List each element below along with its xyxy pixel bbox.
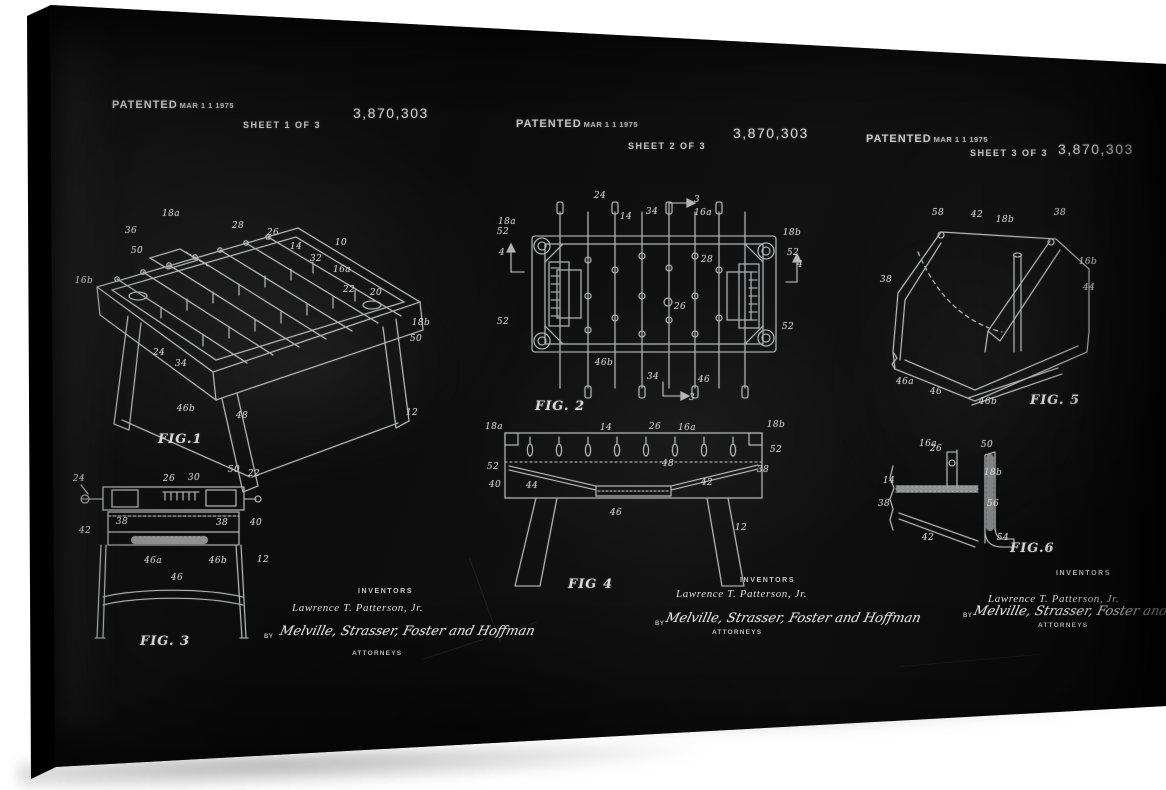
part-label-52: 52	[497, 227, 509, 237]
part-label-24: 24	[594, 191, 606, 201]
part-label-18b: 18b	[996, 215, 1014, 225]
attorneys-signature: Melville, Strasser, Foster and Hoffman	[664, 611, 922, 626]
part-label-48: 48	[236, 411, 248, 421]
fig6-caption: FIG.6	[1010, 541, 1055, 556]
part-label-46a: 46a	[144, 556, 162, 566]
attorneys-heading: ATTORNEYS	[712, 629, 762, 636]
part-label-46: 46	[698, 375, 710, 385]
part-label-42: 42	[971, 210, 983, 220]
attorneys-heading: ATTORNEYS	[352, 650, 402, 657]
sheet3-header: PATENTEDMAR 1 1 1975 SHEET 3 OF 3 3,870,…	[0, 0, 1166, 790]
fig3-part-labels: 24263050223838404246a4646b12	[0, 0, 1166, 790]
part-label-10: 10	[335, 238, 347, 248]
part-label-18a: 18a	[498, 217, 516, 227]
sheet2-header: PATENTEDMAR 1 1 1975 SHEET 2 OF 3 3,870,…	[0, 0, 1166, 790]
fig4-caption: FIG 4	[568, 577, 613, 592]
inventors-heading: INVENTORS	[1056, 570, 1111, 577]
part-label-12: 12	[257, 555, 269, 565]
part-label-38: 38	[757, 465, 769, 475]
part-label-26: 26	[930, 444, 942, 454]
part-label-26: 26	[267, 228, 279, 238]
part-label-12: 12	[406, 408, 418, 418]
section-arrow-3-top	[669, 199, 695, 216]
sheet-number: SHEET 1 OF 3	[243, 120, 321, 130]
patented-date: MAR 1 1 1975	[584, 120, 638, 129]
part-label-24: 24	[73, 474, 85, 484]
part-label-14: 14	[883, 476, 895, 486]
patented-stamp: PATENTEDMAR 1 1 1975	[112, 99, 234, 111]
part-label-52: 52	[770, 445, 782, 455]
figure-6-drawing	[890, 450, 1014, 547]
part-label-52: 52	[487, 462, 499, 472]
part-label-46a: 46a	[896, 377, 914, 387]
part-label-46b: 46b	[979, 397, 997, 407]
part-label-26: 26	[649, 422, 661, 432]
fig1-caption: FIG.1	[158, 432, 203, 447]
figure-4-drawing	[505, 433, 762, 586]
patent-drawings	[0, 0, 1166, 790]
part-label-46b: 46b	[209, 556, 227, 566]
chalkboard-canvas-face: PATENTEDMAR 1 1 1975 SHEET 1 OF 3 3,870,…	[0, 0, 1166, 790]
patented-label: PATENTED	[866, 133, 932, 145]
fig3-caption: FIG. 3	[140, 634, 190, 649]
part-label-48: 48	[662, 459, 674, 469]
fig1-part-labels: 18a3650282614103216a222018b5016b243446b4…	[0, 0, 1166, 790]
part-label-24: 24	[153, 348, 165, 358]
part-label-32: 32	[310, 254, 322, 264]
part-label-54: 54	[997, 533, 1009, 543]
sheet-number: SHEET 2 OF 3	[628, 141, 706, 151]
part-label-18a: 18a	[485, 422, 503, 432]
patented-date: MAR 1 1 1975	[180, 101, 234, 110]
part-label-14: 14	[290, 242, 302, 252]
fig2-part-labels: 243143416a18a5218b52442826525246b34463	[0, 0, 1166, 790]
part-label-44: 44	[1083, 283, 1095, 293]
figure-1-drawing	[97, 228, 423, 492]
signature-block-sheet1: INVENTORS Lawrence T. Patterson, Jr. BY …	[0, 0, 1166, 790]
part-label-46b: 46b	[177, 404, 195, 414]
sheet-number: SHEET 3 OF 3	[970, 148, 1048, 158]
part-label-4: 4	[797, 260, 803, 270]
part-label-18b: 18b	[412, 318, 430, 328]
part-label-46: 46	[171, 573, 183, 583]
part-label-18b: 18b	[984, 468, 1002, 478]
chalk-scratch	[423, 621, 537, 659]
patent-number: 3,870,303	[1058, 141, 1134, 157]
by-label: BY	[963, 613, 972, 619]
part-label-38: 38	[116, 517, 128, 527]
part-label-34: 34	[647, 372, 659, 382]
part-label-22: 22	[343, 285, 355, 295]
part-label-16a: 16a	[678, 423, 696, 433]
part-label-38: 38	[880, 275, 892, 285]
part-label-38: 38	[216, 518, 228, 528]
by-label: BY	[264, 634, 273, 640]
part-label-34: 34	[175, 359, 187, 369]
fig2-caption: FIG. 2	[535, 399, 585, 414]
inventors-heading: INVENTORS	[740, 577, 795, 584]
part-label-26: 26	[674, 302, 686, 312]
attorneys-heading: ATTORNEYS	[1038, 622, 1088, 629]
part-label-38: 38	[1054, 208, 1066, 218]
part-label-38: 38	[878, 499, 890, 509]
part-label-52: 52	[497, 317, 509, 327]
part-label-14: 14	[620, 212, 632, 222]
fig6-part-labels: 16a26501418b38564254	[0, 0, 1166, 790]
section-arrow-3-bottom	[663, 382, 689, 400]
fig5-caption: FIG. 5	[1030, 393, 1080, 408]
part-label-46b: 46b	[595, 358, 613, 368]
part-label-40: 40	[489, 480, 501, 490]
figure-5-drawing	[892, 232, 1089, 405]
canvas-print-product-photo: PATENTEDMAR 1 1 1975 SHEET 1 OF 3 3,870,…	[0, 0, 1166, 790]
inventor-name: Lawrence T. Patterson, Jr.	[676, 588, 807, 600]
part-label-50: 50	[228, 465, 240, 475]
patented-label: PATENTED	[516, 118, 582, 130]
part-label-46: 46	[610, 508, 622, 518]
section-arrow-4-left	[507, 244, 524, 272]
fig5-part-labels: 584218b383816b4446a4646b	[0, 0, 1166, 790]
part-label-40: 40	[250, 518, 262, 528]
part-label-28: 28	[701, 255, 713, 265]
part-label-52: 52	[782, 322, 794, 332]
part-label-28: 28	[232, 221, 244, 231]
part-label-16a: 16a	[694, 208, 712, 218]
section-arrow-4-right	[786, 254, 801, 282]
part-label-22: 22	[248, 469, 260, 479]
attorneys-signature: Melville, Strasser, Foster and Hoffman	[278, 624, 536, 639]
chalk-scratch	[900, 654, 1040, 667]
inventor-name: Lawrence T. Patterson, Jr.	[292, 602, 423, 614]
part-label-52: 52	[787, 248, 799, 258]
part-label-16b: 16b	[75, 276, 93, 286]
chalk-smudge	[820, 220, 1100, 540]
patented-date: MAR 1 1 1975	[934, 135, 988, 144]
part-label-18b: 18b	[767, 420, 785, 430]
part-label-4: 4	[499, 248, 505, 258]
chalk-smudge	[58, 30, 120, 730]
attorneys-signature: Melville, Strasser, Foster and Hoffman	[972, 604, 1166, 619]
part-label-42: 42	[922, 533, 934, 543]
patent-number: 3,870,303	[353, 105, 429, 121]
part-label-16a: 16a	[333, 265, 351, 275]
part-label-16b: 16b	[1079, 257, 1097, 267]
part-label-50: 50	[981, 440, 993, 450]
patent-number: 3,870,303	[733, 125, 809, 141]
part-label-46: 46	[930, 387, 942, 397]
part-label-20: 20	[370, 288, 382, 298]
part-label-18a: 18a	[162, 209, 180, 219]
part-label-3: 3	[694, 195, 700, 205]
chalk-smudge	[150, 260, 470, 480]
part-label-36: 36	[125, 226, 137, 236]
part-label-16a: 16a	[919, 439, 937, 449]
part-label-18b: 18b	[783, 228, 801, 238]
part-label-42: 42	[79, 526, 91, 536]
patented-label: PATENTED	[112, 99, 178, 111]
by-label: BY	[655, 621, 664, 627]
figure-3-drawing	[81, 485, 261, 638]
part-label-12: 12	[735, 523, 747, 533]
chalk-scratch	[469, 558, 501, 643]
part-label-44: 44	[526, 481, 538, 491]
part-label-34: 34	[646, 207, 658, 217]
inventor-name: Lawrence T. Patterson, Jr.	[988, 593, 1119, 605]
part-label-58: 58	[932, 208, 944, 218]
sheet1-header: PATENTEDMAR 1 1 1975 SHEET 1 OF 3 3,870,…	[0, 0, 1166, 790]
part-label-42: 42	[701, 478, 713, 488]
part-label-26: 26	[163, 474, 175, 484]
part-label-30: 30	[188, 473, 200, 483]
inventors-heading: INVENTORS	[358, 588, 413, 595]
part-label-50: 50	[410, 334, 422, 344]
signature-block-sheet3: INVENTORS Lawrence T. Patterson, Jr. BY …	[0, 0, 1166, 790]
patented-stamp: PATENTEDMAR 1 1 1975	[866, 133, 988, 145]
part-label-50: 50	[131, 246, 143, 256]
signature-block-sheet2: INVENTORS Lawrence T. Patterson, Jr. BY …	[0, 0, 1166, 790]
part-label-3: 3	[689, 393, 695, 403]
patented-stamp: PATENTEDMAR 1 1 1975	[516, 118, 638, 130]
part-label-14: 14	[600, 423, 612, 433]
fig4-part-labels: 18a142616a18b525240444842384612	[0, 0, 1166, 790]
figure-2-drawing	[507, 199, 801, 400]
part-label-56: 56	[987, 499, 999, 509]
